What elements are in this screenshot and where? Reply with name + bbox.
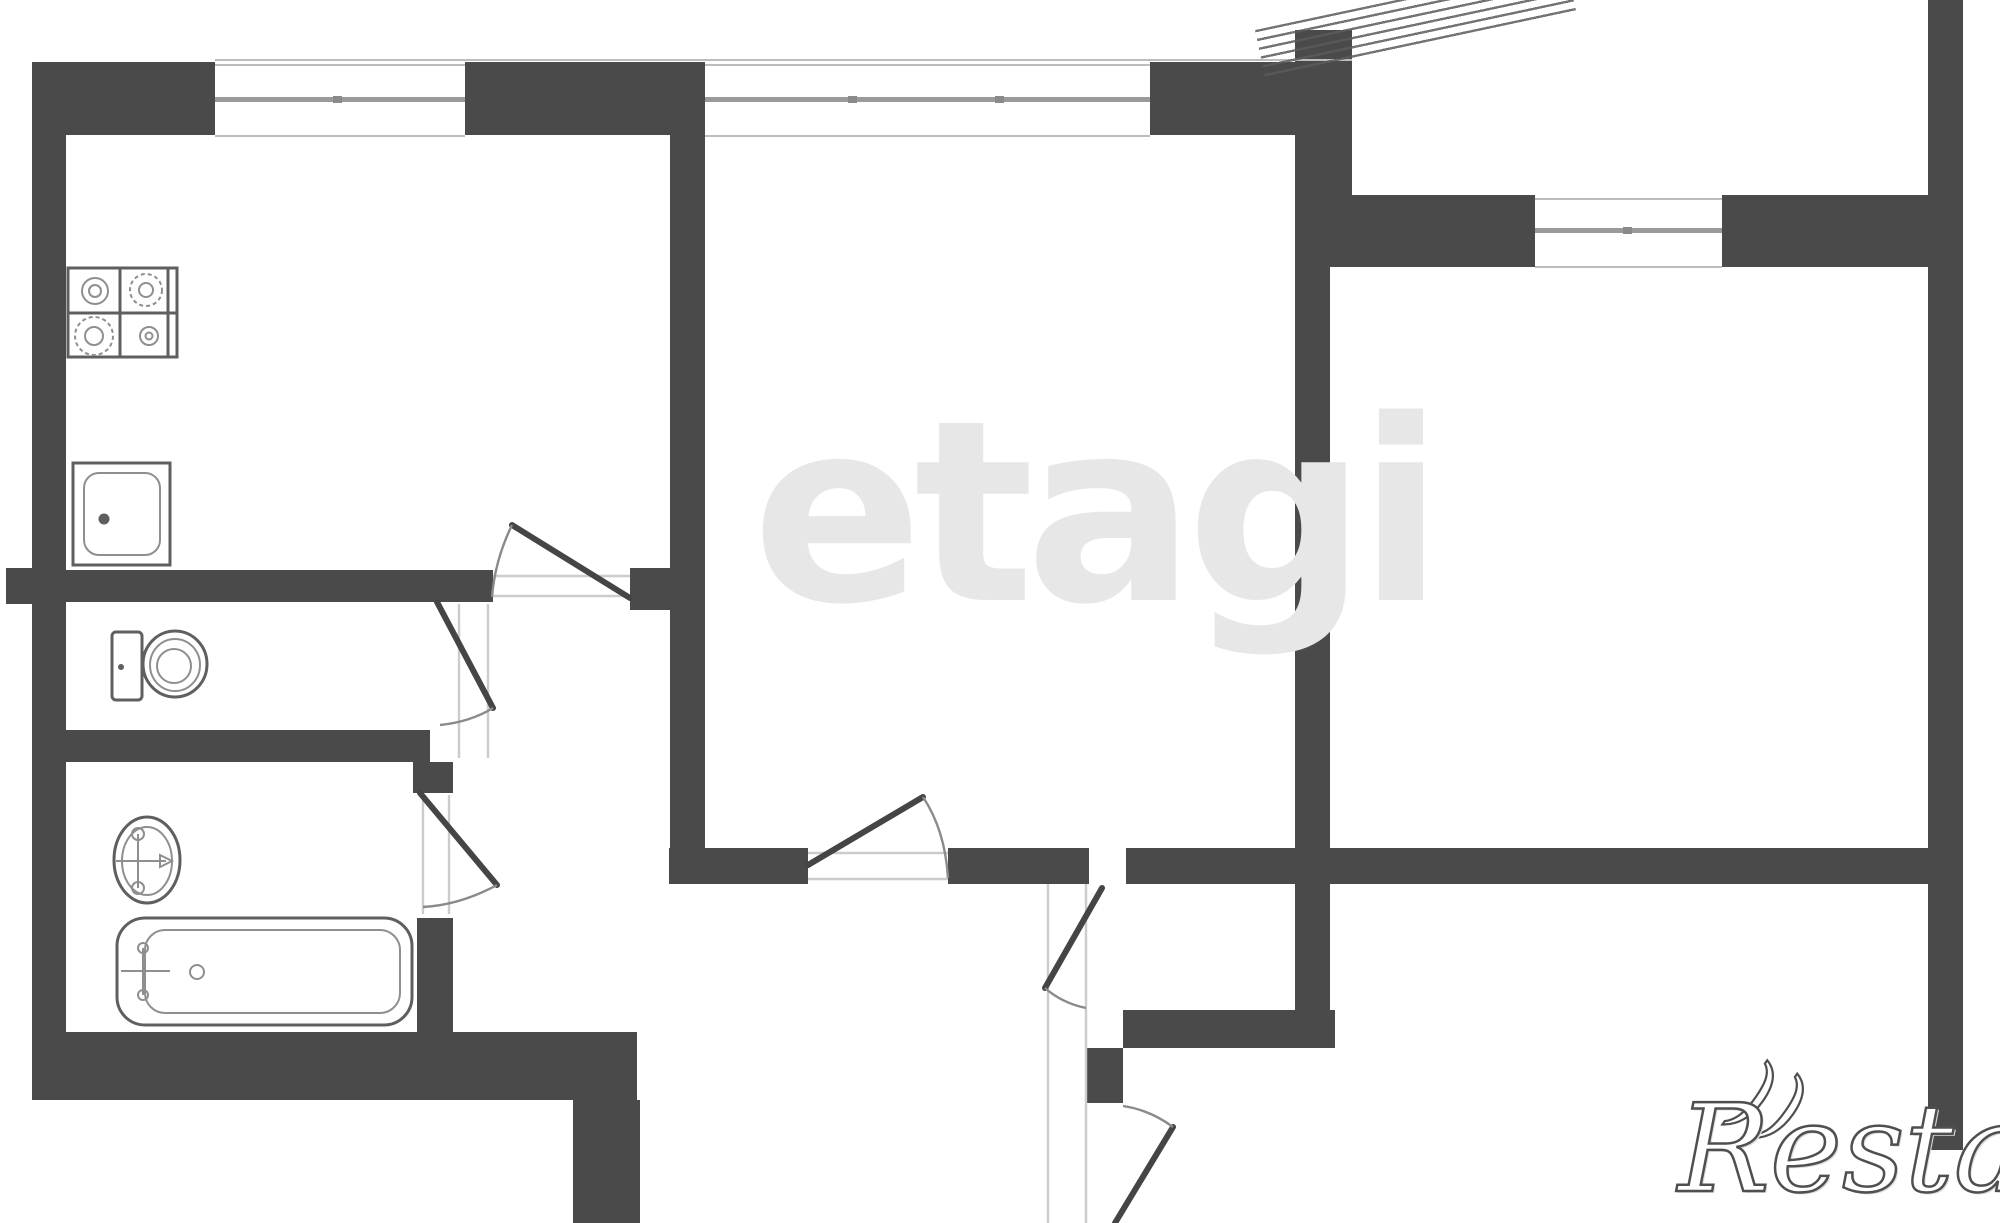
kitchen-door <box>492 525 630 598</box>
bathtub-icon <box>117 918 412 1025</box>
door-frame-lines <box>423 576 1086 1223</box>
floor-plan: etagi )) Restate <box>0 0 2000 1223</box>
bathroom-door <box>420 793 497 907</box>
corridor-lower-door <box>1115 1106 1173 1223</box>
toilet-icon <box>112 631 207 700</box>
washbasin-icon <box>114 817 180 903</box>
living-room-door <box>808 797 948 878</box>
plan-linework <box>0 0 2000 1223</box>
kitchen-sink-icon <box>73 463 170 565</box>
toilet-door <box>437 602 493 725</box>
stove-icon <box>68 268 177 357</box>
corridor-upper-door <box>1045 888 1102 1008</box>
